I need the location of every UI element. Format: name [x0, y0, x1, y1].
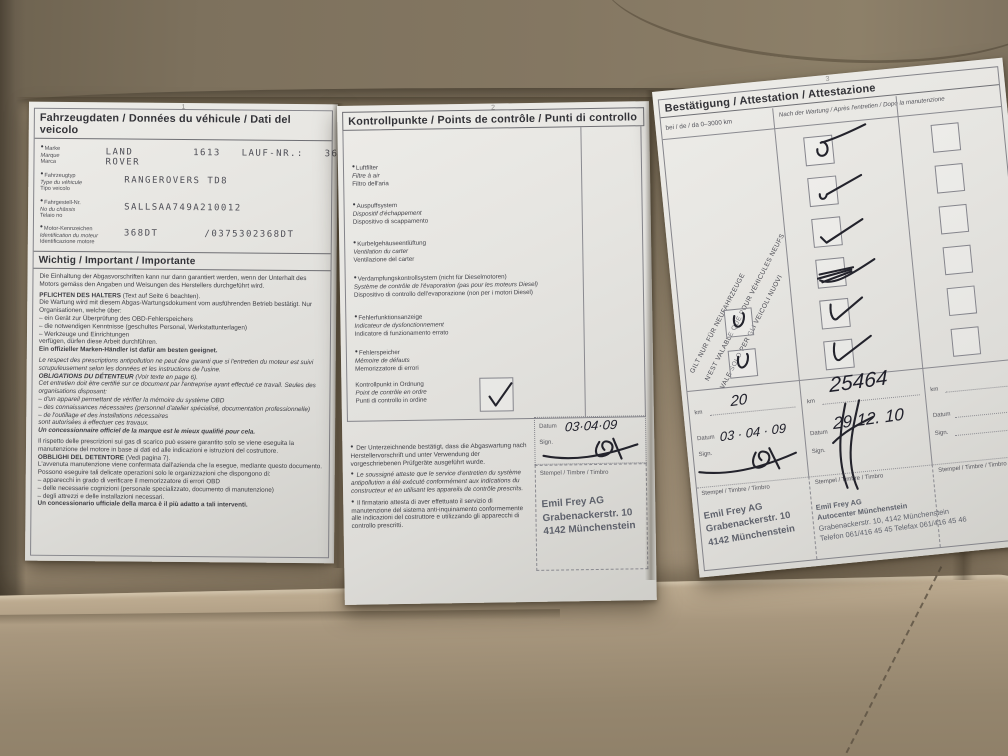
- booklet-page-vehicle-data: 1 Fahrzeugdaten / Données du véhicule / …: [25, 102, 338, 564]
- col1-checkbox-row6: [728, 348, 759, 379]
- signature: [541, 434, 641, 464]
- photo-of-service-booklet: 1 Fahrzeugdaten / Données du véhicule / …: [0, 0, 1008, 756]
- fr-bold: Un concessionnaire officiel de la marque…: [38, 427, 323, 437]
- item-de: Fehlerspeicher: [359, 349, 400, 357]
- attestation-box: Bestätigung / Attestation / Attestazione…: [658, 66, 1008, 571]
- col3-checkbox-row1: [931, 122, 962, 153]
- km-dotted-line: [710, 407, 796, 416]
- km-label-3: km: [930, 386, 939, 393]
- important-title-text: Wichtig / Important / Importante: [39, 255, 196, 267]
- signature-1: [695, 440, 801, 480]
- it-bold: Un concessionario ufficiale della marca …: [37, 500, 322, 510]
- item-bullet-icon: ●: [354, 314, 357, 320]
- field-labels: ●Fahrgestell-Nr. No du châssis Telaio no: [40, 198, 124, 221]
- ok-it: Punti di controllo in ordine: [356, 396, 427, 404]
- de-intro: Die Einhaltung der Abgasvorschriften kan…: [39, 273, 324, 291]
- checkmark-icon: [806, 126, 873, 166]
- page-title: Fahrzeugdaten / Données du véhicule / Da…: [35, 109, 332, 142]
- label-fr: No du châssis: [40, 206, 75, 212]
- scribble-checkmark-icon: [812, 255, 879, 295]
- ok-de: Kontrollpunkt in Ordnung: [355, 381, 424, 389]
- fr-duty-note: (Voir texte en page 6).: [134, 373, 198, 381]
- checkpoint-ok-label: Kontrollpunkt in Ordnung Point de contrô…: [355, 380, 465, 405]
- stempel-label: Stempel / Timbre / Timbro: [540, 470, 609, 477]
- col3-checkbox-row6: [951, 326, 982, 357]
- attestation-text: ● Der Unterzeichnende bestätigt, dass di…: [350, 441, 529, 534]
- checkpoint-item: ●Fehlerfunktionsanzeige Indicateur de dy…: [354, 310, 574, 338]
- item-it: Dispositivo di controllo dell'evaporazio…: [354, 288, 533, 298]
- attest-de: ● Der Unterzeichnende bestätigt, dass di…: [350, 441, 528, 468]
- checkpoint-item: ●Luftfilter Filtre à air Filtro dell'ari…: [352, 160, 572, 188]
- it-duty-note: (Vedi pagina 7).: [124, 454, 170, 461]
- field-row-typ: ●Fahrzeugtyp Type du véhicule Tipo veico…: [40, 171, 228, 195]
- checkmark-icon: [725, 308, 753, 336]
- col1-header: bei / de / da 0–3000 km: [665, 118, 732, 131]
- sign-label-2: Sign.: [812, 448, 826, 455]
- fr-duty-bold: OBLIGATIONS DU DÉTENTEUR: [39, 372, 134, 380]
- de-duty-bold: PFLICHTEN DES HALTERS: [39, 291, 121, 299]
- ok-fr: Point de contrôle en ordre: [355, 388, 426, 396]
- col2-checkbox-row1: [803, 135, 835, 167]
- item-fr: Mémoire de défauts: [355, 357, 410, 365]
- field-row-engine: ●Motor-Kennzeichen Identification du mot…: [40, 224, 295, 248]
- attest-de-text: Der Unterzeichnende bestätigt, dass die …: [350, 442, 526, 467]
- datum-label-1: Datum: [697, 435, 715, 443]
- col3-checkbox-row2: [935, 163, 966, 194]
- attest-bullet-icon: ●: [351, 499, 354, 505]
- field-labels: ●Marke Marque Marca: [40, 144, 105, 168]
- stempel-label-3: Stempel / Timbre / Timbro: [938, 461, 1007, 474]
- vehicle-data-box: Fahrzeugdaten / Données du véhicule / Da…: [30, 108, 333, 559]
- field-row-marke: ●Marke Marque Marca LAND ROVER 1613 LAUF…: [40, 144, 359, 170]
- datum-label-2: Datum: [810, 429, 828, 437]
- col2-checkbox-row3: [811, 216, 843, 248]
- item-bullet-icon: ●: [353, 240, 356, 246]
- checkpoint-item: ●Fehlerspeicher Mémoire de défauts Memor…: [355, 345, 575, 373]
- checkpoints-box: ●Luftfilter Filtre à air Filtro dell'ari…: [342, 126, 646, 422]
- col3-checkbox-row4: [943, 245, 974, 276]
- datum-label: Datum: [539, 424, 557, 430]
- field-value-engine-no: /0375302368DT: [204, 225, 294, 248]
- checkmark-icon: [822, 292, 877, 331]
- item-it: Memorizzatore di errori: [355, 364, 419, 372]
- col2-checkbox-row2: [807, 175, 839, 207]
- ok-checkbox: [479, 377, 514, 412]
- col3-checkbox-row3: [939, 204, 970, 235]
- col1-checkbox-row5: [724, 307, 755, 338]
- label-fr: Type du véhicule: [40, 179, 82, 185]
- field-labels: ●Motor-Kennzeichen Identification du mot…: [40, 224, 124, 247]
- attest-it: ● Il firmatario attesta di aver effettua…: [351, 496, 529, 531]
- it-duty-bold: OBBLIGHI DEL DETENTORE: [38, 453, 124, 461]
- field-labels: ●Fahrzeugtyp Type du véhicule Tipo veico…: [40, 171, 124, 194]
- datum-handwritten: 03·04·09: [564, 417, 617, 435]
- stamp-cell-3: Stempel / Timbre / Timbro: [932, 454, 1008, 547]
- label-fr: Identification du moteur: [40, 232, 98, 239]
- km-value-1: 20: [730, 391, 747, 410]
- item-it: Ventilazione del carter: [353, 255, 414, 263]
- checkmark-icon: [810, 172, 869, 209]
- attest-bullet-icon: ●: [351, 471, 354, 477]
- booklet-page-attestation: 3 Bestätigung / Attestation / Attestazio…: [652, 58, 1008, 578]
- field-value-engine: 368DT: [124, 224, 159, 246]
- item-it: Filtro dell'aria: [352, 180, 389, 188]
- checkpoint-item: ●Verdampfungskontrollsystem (nicht für D…: [354, 271, 574, 299]
- important-text: Die Einhaltung der Abgasvorschriften kan…: [31, 269, 330, 511]
- checkpoint-item: ●Auspuffsystem Dispositif d'échappement …: [353, 198, 573, 226]
- de-duty-note: (Text auf Seite 6 beachten).: [121, 292, 200, 300]
- field-bullet-icon: ●: [40, 171, 43, 177]
- datum-label-3: Datum: [933, 411, 951, 419]
- stamp-line: Emil Frey AG: [541, 495, 604, 510]
- attest-fr: ● Le soussigné atteste que le service d'…: [351, 468, 529, 495]
- date-sign-box: Datum 03·04·09 Sign.: [534, 415, 647, 465]
- label-de: Fahrzeugtyp: [44, 173, 75, 179]
- box-divider: [580, 127, 586, 417]
- stamp-cell-1: Stempel / Timbre / Timbro Emil Frey AG G…: [697, 476, 818, 570]
- stempel-label-1: Stempel / Timbre / Timbro: [701, 484, 770, 497]
- field-bullet-icon: ●: [40, 198, 43, 204]
- label-de: Fahrgestell-Nr.: [44, 200, 81, 206]
- label-it: Telaio no: [40, 213, 62, 219]
- checkmark-icon: [481, 376, 522, 413]
- km-label-2: km: [807, 399, 816, 406]
- item-bullet-icon: ●: [354, 275, 357, 281]
- label-it: Marca: [40, 159, 56, 165]
- booklet-page-checkpoints: 2 Kontrollpunkte / Points de contrôle / …: [337, 101, 657, 605]
- label-de: Motor-Kennzeichen: [44, 226, 93, 232]
- item-bullet-icon: ●: [352, 164, 355, 170]
- item-de: Auspuffsystem: [357, 202, 398, 210]
- item-fr: Dispositif d'échappement: [353, 209, 422, 217]
- item-fr: Ventilation du carter: [353, 248, 408, 256]
- field-value-type: RANGEROVERS TD8: [124, 171, 228, 194]
- item-bullet-icon: ●: [355, 349, 358, 355]
- col2-checkbox-row4-scribbled: [815, 257, 847, 289]
- stempel-label-text: Stempel / Timbre / Timbro: [540, 470, 609, 477]
- label-fr: Marque: [41, 152, 60, 158]
- sign-label-3: Sign.: [934, 430, 948, 437]
- datum-dotted-line: [955, 410, 1008, 418]
- dealer-stamp: Emil Frey AG Grabenackerstr. 10 4142 Mün…: [541, 492, 636, 539]
- attest-bullet-icon: ●: [350, 444, 353, 450]
- item-de: Fehlerfunktionsanzeige: [358, 314, 422, 322]
- field-bullet-icon: ●: [40, 224, 43, 230]
- signature-2: [827, 397, 884, 493]
- col3-checkbox-row5: [947, 285, 978, 316]
- checkpoints-title-text: Kontrollpunkte / Points de contrôle / Pu…: [348, 111, 637, 128]
- dealer-stamp-1: Emil Frey AG Grabenackerstr. 10 4142 Mün…: [703, 496, 796, 550]
- item-it: Dispositivo di scappamento: [353, 217, 428, 225]
- item-bullet-icon: ●: [353, 202, 356, 208]
- item-de: Kurbelgehäuseentlüftung: [357, 240, 426, 248]
- km-label-1: km: [694, 410, 703, 417]
- item-de: Luftfilter: [356, 164, 378, 171]
- sign-dotted-line: [955, 428, 1008, 436]
- stamp-box: Stempel / Timbre / Timbro Emil Frey AG G…: [535, 463, 649, 571]
- field-value-vin: SALLSAA749A210012: [124, 198, 242, 221]
- checkmark-icon: [826, 333, 881, 372]
- checkpoint-item: ●Kurbelgehäuseentlüftung Ventilation du …: [353, 236, 573, 264]
- item-fr: Filtre à air: [352, 172, 380, 179]
- km-dotted-line: [946, 384, 1008, 393]
- checkmark-icon: [812, 213, 871, 250]
- field-bullet-icon: ●: [41, 144, 44, 150]
- field-row-chassis: ●Fahrgestell-Nr. No du châssis Telaio no…: [40, 198, 242, 222]
- de-bold: Ein offizieller Marken-Händler ist dafür…: [39, 346, 324, 356]
- new-vehicles-only-note: GILT NUR FÜR NEUFAHRZEUGE N'EST VALABLE …: [685, 178, 830, 393]
- label-de: Marke: [45, 146, 61, 152]
- checkmark-icon: [729, 349, 757, 377]
- page-fold-shadow: [645, 90, 657, 580]
- field-value-make: LAND ROVER: [105, 144, 159, 167]
- item-it: Indicatore di funzionamento errato: [355, 329, 449, 337]
- label-it: Identificazione motore: [40, 239, 95, 245]
- col2-checkbox-row6: [823, 339, 855, 371]
- attest-it-text: Il firmatario attesta di aver effettuato…: [351, 497, 523, 530]
- vehicle-fields: ●Marke Marque Marca LAND ROVER 1613 LAUF…: [34, 139, 332, 255]
- attest-fr-text: Le soussigné atteste que le service d'en…: [351, 470, 523, 495]
- page-title-text: Fahrzeugdaten / Données du véhicule / Da…: [40, 112, 291, 136]
- label-it: Tipo veicolo: [40, 186, 70, 192]
- col2-checkbox-row5: [819, 298, 851, 330]
